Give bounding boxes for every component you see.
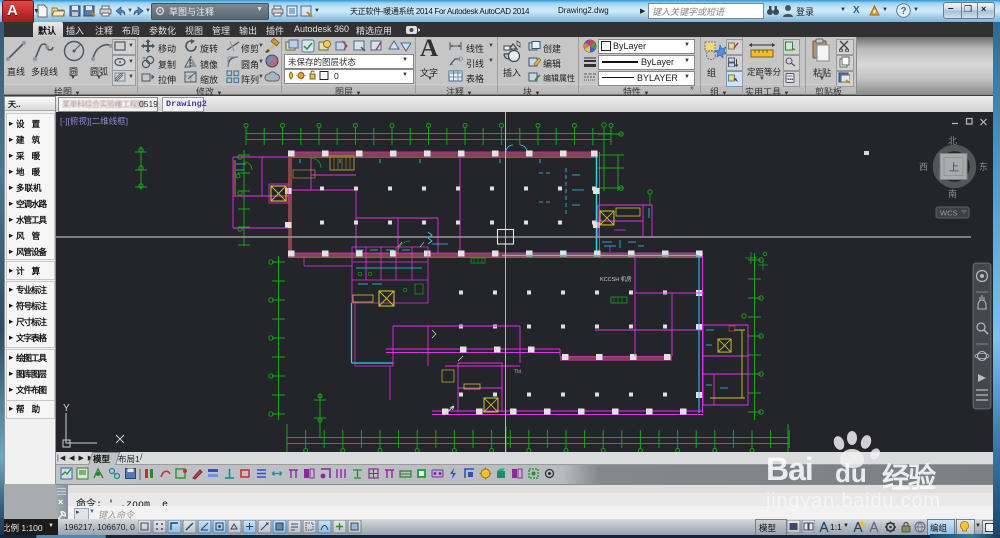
svg-text:北: 北 bbox=[948, 136, 957, 146]
svg-text:东: 东 bbox=[979, 161, 988, 172]
svg-text:Tbt: Tbt bbox=[514, 369, 522, 375]
svg-text:上: 上 bbox=[949, 162, 959, 174]
svg-text:[-][俯视][二维线框]: [-][俯视][二维线框] bbox=[60, 116, 128, 126]
svg-text:KCCSH 机房: KCCSH 机房 bbox=[600, 275, 632, 283]
svg-text:WCS: WCS bbox=[940, 209, 958, 218]
svg-text:Y: Y bbox=[63, 403, 70, 414]
svg-text:南: 南 bbox=[948, 188, 957, 199]
svg-text:?: ? bbox=[900, 6, 906, 17]
svg-text:西: 西 bbox=[919, 162, 928, 172]
